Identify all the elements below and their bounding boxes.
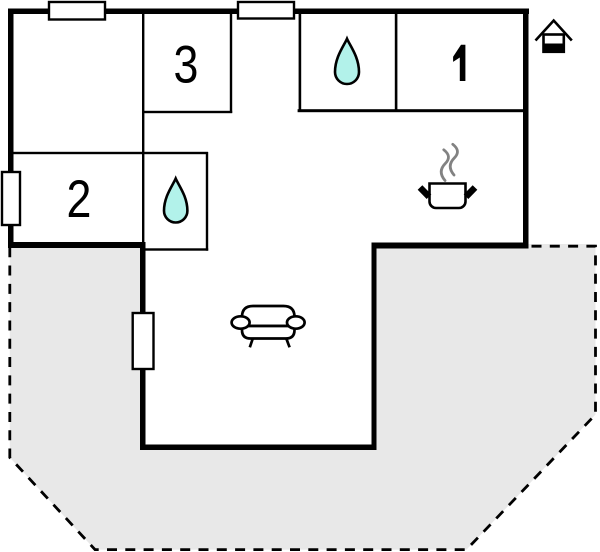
svg-text:2: 2 <box>67 171 92 229</box>
svg-text:3: 3 <box>174 36 199 94</box>
